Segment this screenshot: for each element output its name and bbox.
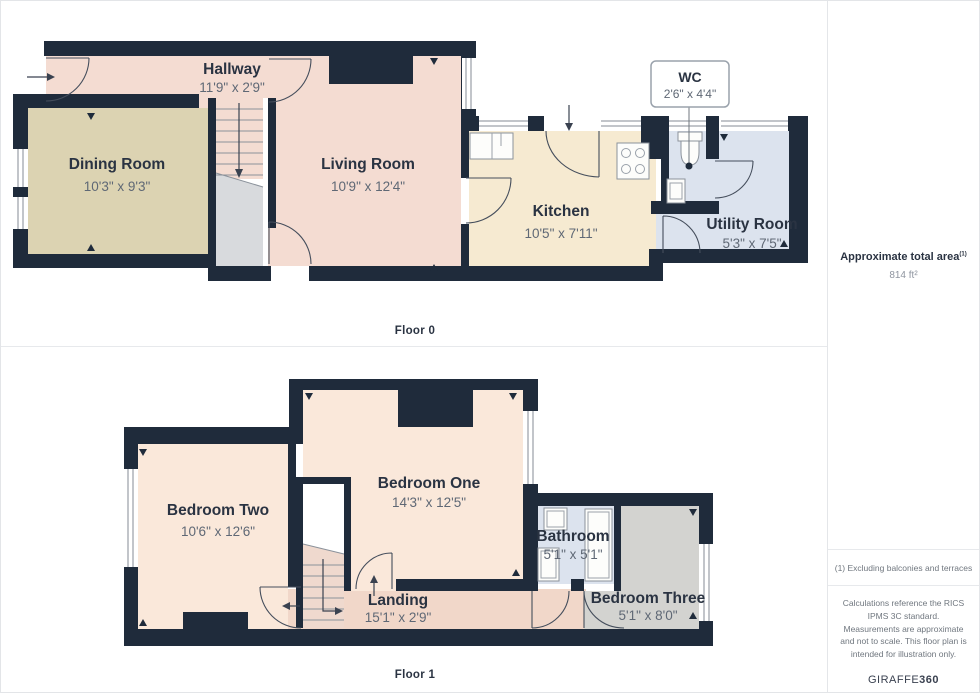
bedroom-two-window bbox=[124, 469, 138, 567]
floor0-panel: WC 2'6" x 4'4" Hallway 11'9" x 2'9" Dini… bbox=[1, 1, 829, 347]
wc-window bbox=[669, 117, 706, 130]
brand-suffix: 360 bbox=[919, 674, 939, 686]
room-label-landing: Landing bbox=[368, 592, 428, 609]
hob bbox=[617, 143, 649, 179]
total-area-block: Approximate total area(1) 814 ft² bbox=[828, 251, 979, 281]
stairwell-void bbox=[303, 484, 344, 554]
room-label-kitchen: Kitchen bbox=[533, 203, 590, 220]
room-label-bedroom-three: Bedroom Three bbox=[591, 590, 706, 607]
room-dims-bedroom-one: 14'3" x 12'5" bbox=[392, 495, 466, 510]
room-label-hallway: Hallway bbox=[203, 61, 261, 78]
room-label-utility: Utility Room bbox=[706, 216, 797, 233]
floor1-panel: Bedroom Two 10'6" x 12'6" Bedroom One 14… bbox=[1, 347, 829, 693]
total-area-title: Approximate total area(1) bbox=[828, 251, 979, 263]
room-dims-utility: 5'3" x 7'5" bbox=[722, 236, 781, 251]
room-label-living: Living Room bbox=[321, 156, 415, 173]
shower bbox=[585, 509, 612, 581]
floor1-label: Floor 1 bbox=[1, 669, 829, 681]
dining-window-2 bbox=[13, 197, 28, 229]
total-area-label: Approximate total area bbox=[840, 251, 959, 263]
disclaimer-text: Calculations reference the RICS IPMS 3C … bbox=[840, 597, 967, 661]
kitchen-window-2 bbox=[601, 117, 641, 130]
kitchen-window-1 bbox=[479, 117, 528, 130]
room-dims-living: 10'9" x 12'4" bbox=[331, 179, 405, 194]
floor0-label: Floor 0 bbox=[1, 325, 829, 337]
understairs-floor bbox=[216, 173, 263, 266]
chimney-breast bbox=[329, 56, 413, 84]
brand-name: GIRAFFE bbox=[868, 674, 919, 686]
floor0-plan: WC 2'6" x 4'4" Hallway 11'9" x 2'9" Dini… bbox=[1, 1, 829, 346]
room-dims-bathroom: 5'1" x 5'1" bbox=[543, 547, 602, 562]
room-label-bedroom-two: Bedroom Two bbox=[167, 502, 269, 519]
room-label-wc: WC bbox=[678, 69, 701, 85]
bedroom-one-recess bbox=[398, 390, 473, 427]
giraffe360-logo: GIRAFFE360 bbox=[840, 672, 967, 689]
room-dims-bedroom-two: 10'6" x 12'6" bbox=[181, 524, 255, 539]
room-dims-kitchen: 10'5" x 7'11" bbox=[524, 226, 597, 241]
wc-callout-dot bbox=[686, 163, 693, 170]
total-area-footnote-marker: (1) bbox=[959, 251, 966, 257]
utility-window bbox=[721, 117, 788, 130]
living-window bbox=[462, 58, 476, 109]
room-dims-bedroom-three: 5'1" x 8'0" bbox=[618, 608, 677, 623]
disclaimer-block: Calculations reference the RICS IPMS 3C … bbox=[828, 585, 979, 692]
toilet bbox=[678, 132, 702, 141]
room-dims-wc: 2'6" x 4'4" bbox=[664, 87, 716, 101]
info-sidebar: Approximate total area(1) 814 ft² (1) Ex… bbox=[827, 1, 979, 692]
room-dims-landing: 15'1" x 2'9" bbox=[365, 610, 432, 625]
dining-window-1 bbox=[13, 149, 28, 187]
bedroom-one-window bbox=[524, 411, 538, 484]
rear-entrance-arrow-icon bbox=[565, 123, 573, 131]
total-area-value: 814 ft² bbox=[828, 270, 979, 281]
room-dims-dining: 10'3" x 9'3" bbox=[84, 179, 151, 194]
bedroom-three-window bbox=[700, 544, 713, 621]
room-label-dining: Dining Room bbox=[69, 156, 165, 173]
room-dims-hallway: 11'9" x 2'9" bbox=[199, 80, 265, 95]
bedroom-two-chimney bbox=[183, 612, 248, 630]
floor1-plan: Bedroom Two 10'6" x 12'6" Bedroom One 14… bbox=[1, 347, 829, 693]
floorplan-page: WC 2'6" x 4'4" Hallway 11'9" x 2'9" Dini… bbox=[0, 0, 980, 693]
room-label-bathroom: Bathroom bbox=[536, 528, 609, 545]
exclusion-note: (1) Excluding balconies and terraces bbox=[828, 549, 979, 586]
room-label-bedroom-one: Bedroom One bbox=[378, 475, 481, 492]
